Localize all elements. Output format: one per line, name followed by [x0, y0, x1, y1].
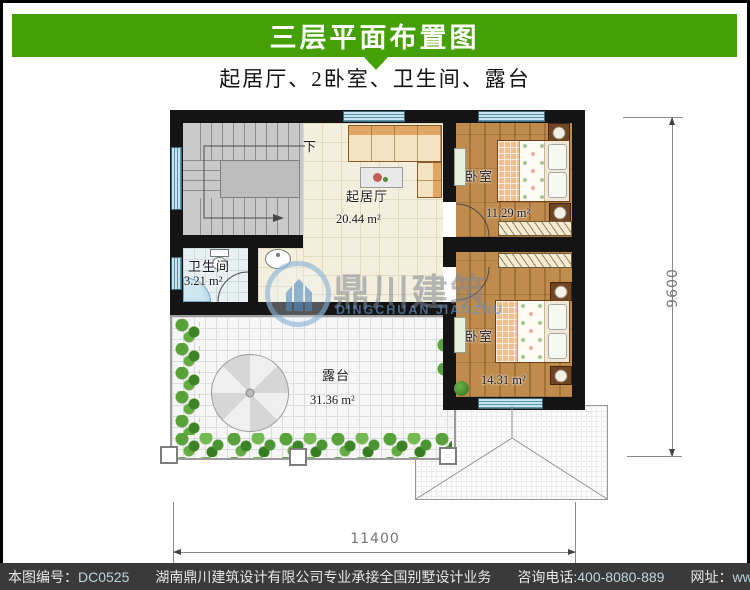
wardrobe-bottom-bedroom — [498, 253, 572, 268]
table-flower-icon — [373, 173, 382, 182]
dim-width-value: 11400 — [340, 531, 410, 547]
website-label: 网址： — [690, 567, 732, 587]
wall-right — [572, 110, 585, 410]
stair-treads-lower — [200, 198, 303, 235]
window-living-top — [343, 111, 405, 122]
nightstand — [549, 203, 571, 222]
dim-height-value: 9600 — [665, 253, 681, 323]
patio-umbrella — [211, 354, 289, 432]
terrace-column — [439, 447, 457, 465]
wall-between-bedrooms — [443, 237, 585, 252]
bed-pillows — [544, 301, 569, 362]
terrace-floor: 露台 31.36 m² — [170, 315, 456, 460]
stairs-down-label: 下 — [303, 136, 317, 155]
dim-arrow-up-icon — [669, 117, 675, 125]
drawing-id-value: DC0525 — [78, 569, 129, 585]
terrace-plants-bottom — [174, 433, 452, 458]
stair-treads-side — [183, 160, 220, 198]
dim-line-bottom — [173, 552, 576, 553]
sofa-right-section — [417, 162, 442, 198]
living-room-label: 起居厅 — [346, 186, 388, 205]
watermark-logo-icon — [265, 261, 331, 327]
page-title: 三层平面布置图 — [270, 16, 480, 55]
bed-blanket — [518, 301, 544, 362]
window-stairs-left — [171, 147, 182, 210]
bed-pillows — [544, 141, 569, 201]
bedroom-top-area: 11.29 m² — [486, 206, 530, 221]
bed-fold — [498, 141, 520, 201]
wall-bathroom-right — [248, 248, 258, 302]
watermark-building-icon — [286, 279, 312, 311]
nightstand — [550, 366, 572, 385]
company-text: 湖南鼎川建筑设计有限公司专业承接全国别墅设计业务 — [155, 567, 491, 587]
phone-value: 400-8080-889 — [577, 569, 664, 585]
nightstand — [550, 282, 572, 301]
potted-plant — [454, 381, 469, 396]
bed-top-bedroom — [497, 140, 570, 202]
bedroom-bottom-label: 卧室 — [465, 326, 493, 345]
dim-arrow-left-icon — [173, 549, 181, 555]
terrace-column — [289, 448, 307, 466]
wall-stairs-bottom — [170, 235, 303, 248]
window-bedroom-bottom — [478, 398, 543, 409]
stair-landing — [220, 160, 300, 198]
bed-bottom-bedroom — [495, 300, 570, 363]
terrace-plants-left — [174, 319, 200, 435]
bedroom-top-label: 卧室 — [465, 166, 493, 185]
terrace-area: 31.36 m² — [310, 393, 355, 408]
phone-label: 咨询电话: — [517, 567, 577, 587]
title-bar: 三层平面布置图 — [12, 14, 737, 57]
website-value: www.bstzcs.com — [732, 569, 750, 585]
wardrobe-top-bedroom — [498, 221, 572, 236]
bedroom-bottom-area: 14.31 m² — [481, 373, 526, 388]
stair-treads-upper — [200, 123, 303, 160]
coffee-table — [360, 167, 403, 188]
watermark-en-text: DINGCHUAN JIANZHU — [336, 303, 504, 317]
window-bedroom-top — [478, 111, 545, 122]
page-subtitle: 起居厅、2卧室、卫生间、露台 — [0, 63, 750, 93]
floor-plan-page: 三层平面布置图 起居厅、2卧室、卫生间、露台 露台 31.36 m² — [0, 0, 750, 590]
terrace-column — [160, 446, 178, 464]
bathroom-area: 3.21 m² — [184, 274, 222, 289]
bathroom-label: 卫生间 — [188, 256, 230, 275]
dim-arrow-right-icon — [568, 549, 576, 555]
drawing-id-label: 本图编号： — [8, 567, 78, 587]
terrace-label: 露台 — [322, 365, 350, 384]
living-room-area: 20.44 m² — [336, 212, 381, 227]
dim-arrow-down-icon — [669, 449, 675, 457]
sofa-top-section — [348, 125, 442, 162]
footer-bar: 本图编号： DC0525 湖南鼎川建筑设计有限公司专业承接全国别墅设计业务 咨询… — [0, 563, 750, 590]
window-bathroom-left — [171, 257, 182, 290]
bed-blanket — [520, 141, 544, 201]
